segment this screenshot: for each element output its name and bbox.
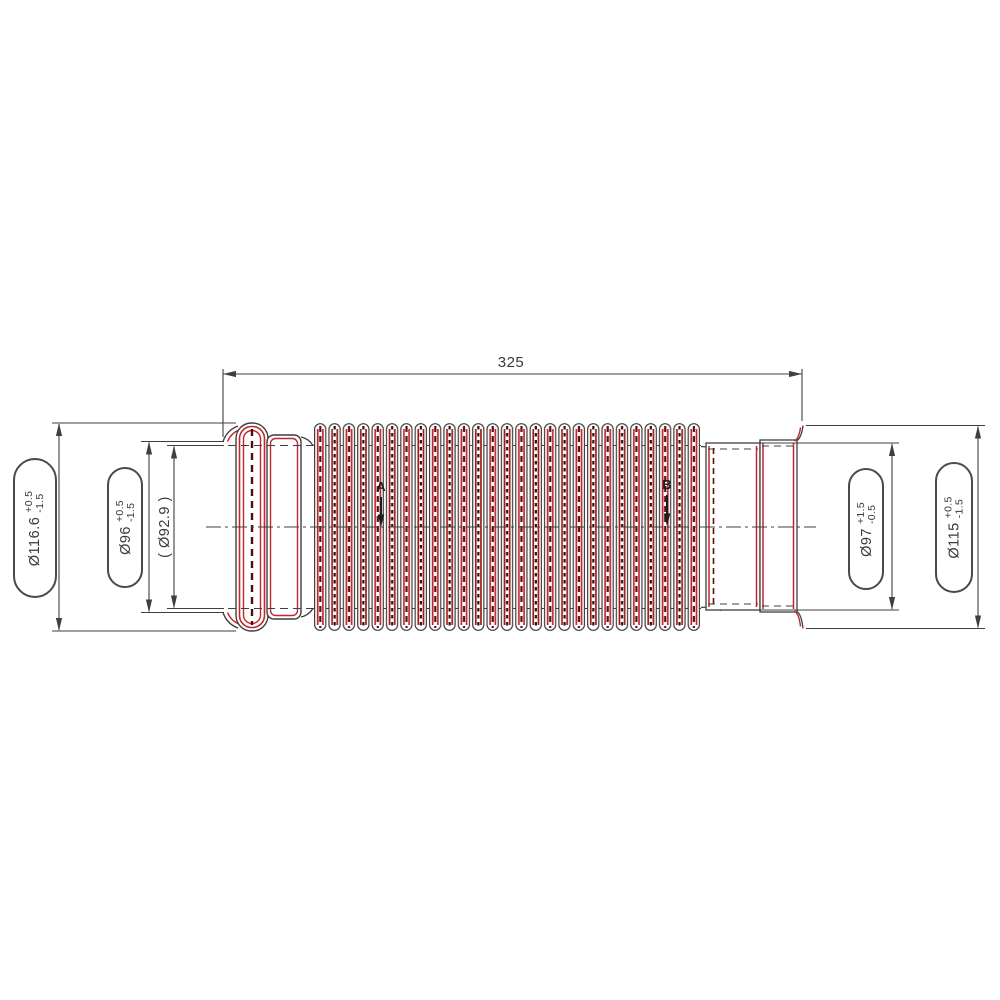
tol-upper: +0.5: [115, 500, 126, 522]
dim-value: Ø97: [858, 528, 874, 557]
dim-capsule-right-neck-od: Ø97 +1.5 -0.5: [848, 468, 884, 590]
dim-label-reference-id: ( Ø92.9 ): [146, 462, 184, 592]
dim-value: Ø115: [946, 522, 962, 558]
dim-value: ( Ø92.9 ): [157, 496, 173, 558]
tol-lower: -1.5: [954, 496, 965, 518]
dim-value: Ø96: [117, 526, 133, 555]
tol-lower: -1.5: [35, 490, 46, 512]
tol-upper: +1.5: [856, 502, 867, 524]
callout-a-label: A: [372, 479, 390, 494]
length-dimension-label: 325: [480, 354, 542, 371]
tol-lower: -1.5: [125, 500, 136, 522]
tol-lower: -0.5: [866, 502, 877, 524]
dim-capsule-left-flange-od: Ø116.6 +0.5 -1.5: [13, 458, 57, 598]
callout-b-label: B: [658, 477, 676, 492]
tol-upper: +0.5: [944, 496, 955, 518]
dim-capsule-left-opening-od: Ø96 +0.5 -1.5: [107, 467, 143, 588]
dim-value: Ø116.6: [27, 516, 43, 566]
dim-capsule-right-opening-od: Ø115 +0.5 -1.5: [935, 462, 973, 593]
drawing-canvas: 325 Ø116.6 +0.5 -1.5 Ø96 +0.5 -1.5 ( Ø92…: [0, 0, 1000, 1000]
